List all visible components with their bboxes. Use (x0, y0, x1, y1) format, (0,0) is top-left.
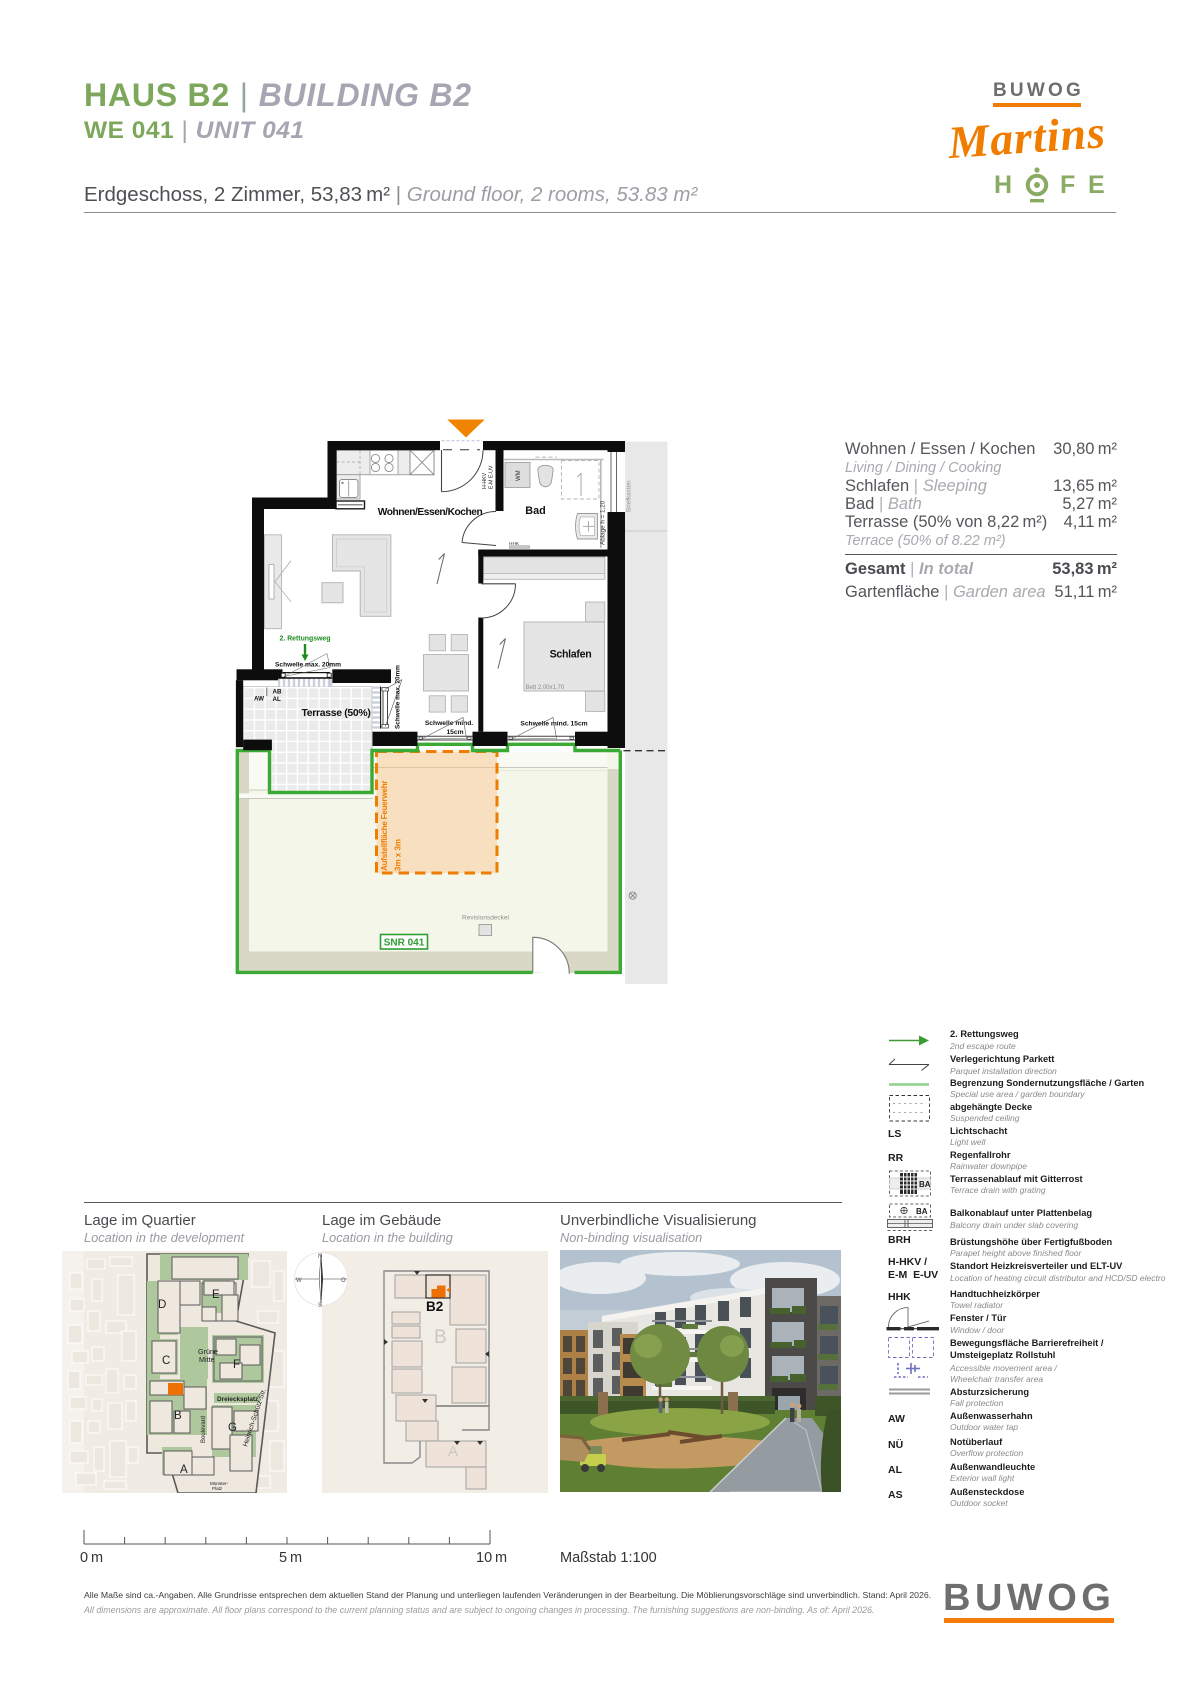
svg-text:E-M E-UV: E-M E-UV (489, 465, 495, 489)
svg-text:Wohnen/Essen/Kochen: Wohnen/Essen/Kochen (378, 507, 483, 518)
svg-text:15cm: 15cm (446, 729, 463, 736)
svg-text:3m x 3m: 3m x 3m (394, 839, 403, 871)
svg-text:W: W (296, 1278, 302, 1284)
svg-text:AW: AW (254, 696, 264, 703)
svg-text:Dreiecksplatz: Dreiecksplatz (217, 1396, 258, 1403)
svg-text:Boulevard: Boulevard (201, 1416, 207, 1443)
svg-text:Platz: Platz (212, 1486, 223, 1491)
svg-text:B: B (174, 1410, 182, 1422)
svg-text:Schlafen: Schlafen (550, 649, 592, 661)
svg-text:H-HKV: H-HKV (482, 472, 488, 489)
svg-text:AB: AB (273, 689, 282, 696)
svg-text:Schwelle max. 20mm: Schwelle max. 20mm (275, 662, 341, 669)
svg-text:S: S (318, 1303, 322, 1309)
svg-text:Terrasse (50%): Terrasse (50%) (302, 708, 371, 719)
svg-text:AL: AL (273, 696, 281, 703)
svg-text:Schwelle mind.: Schwelle mind. (425, 720, 473, 727)
svg-text:B2: B2 (426, 1299, 443, 1314)
svg-text:A: A (448, 1443, 458, 1460)
svg-text:5 m: 5 m (279, 1550, 302, 1566)
svg-text:WM: WM (516, 470, 522, 481)
svg-text:Mitte: Mitte (199, 1355, 215, 1364)
svg-text:Ablage h = 1,20: Ablage h = 1,20 (600, 500, 607, 545)
svg-text:BA: BA (919, 1180, 931, 1189)
svg-text:C: C (162, 1355, 170, 1367)
svg-text:Aufstellfläche Feuerwehr: Aufstellfläche Feuerwehr (380, 781, 389, 871)
svg-text:10 m: 10 m (476, 1550, 507, 1566)
svg-text:Revisionsdeckel: Revisionsdeckel (462, 915, 510, 922)
svg-text:Bett 2.00x1.70: Bett 2.00x1.70 (526, 685, 565, 691)
svg-text:B: B (434, 1327, 447, 1348)
svg-text:N: N (318, 1254, 322, 1260)
svg-text:2. Rettungsweg: 2. Rettungsweg (280, 636, 331, 643)
svg-text:Bad: Bad (525, 505, 545, 517)
svg-text:E: E (212, 1289, 220, 1301)
svg-text:D: D (158, 1299, 166, 1311)
svg-text:0 m: 0 m (80, 1550, 103, 1566)
svg-text:SNR 041: SNR 041 (384, 937, 425, 948)
svg-text:A: A (180, 1464, 188, 1476)
svg-text:BA: BA (916, 1207, 928, 1216)
svg-text:Maßstab 1:100: Maßstab 1:100 (560, 1550, 657, 1566)
svg-text:Briefkasten: Briefkasten (626, 480, 633, 512)
svg-text:F: F (233, 1359, 240, 1371)
svg-text:G: G (228, 1422, 237, 1434)
svg-text:O: O (341, 1278, 346, 1284)
